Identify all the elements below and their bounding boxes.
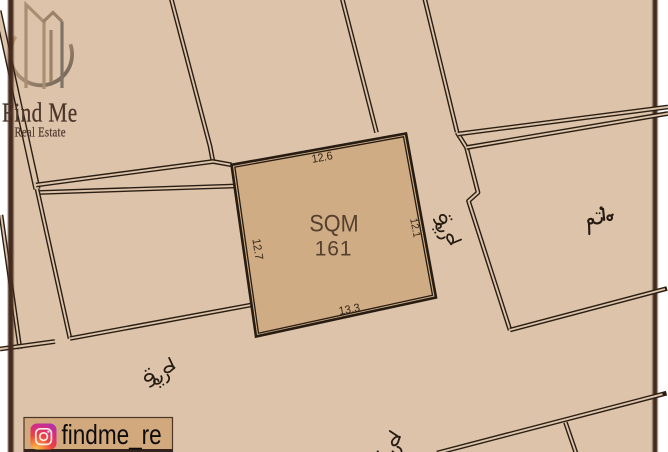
svg-text:SQM: SQM (309, 209, 358, 236)
svg-text:Real Estate: Real Estate (15, 124, 66, 140)
svg-text:161: 161 (315, 238, 352, 261)
svg-text:findme_re: findme_re (62, 420, 162, 451)
